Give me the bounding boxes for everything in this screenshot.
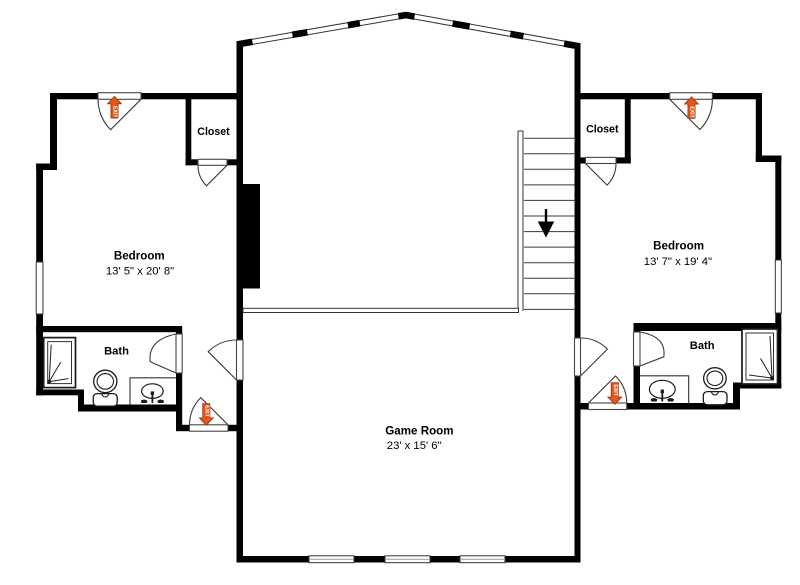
- svg-text:23' x 15' 6": 23' x 15' 6": [387, 440, 442, 452]
- svg-text:EXIT: EXIT: [612, 384, 618, 396]
- svg-text:EXIT: EXIT: [112, 106, 118, 118]
- svg-text:Closet: Closet: [197, 126, 230, 138]
- svg-text:Bedroom: Bedroom: [653, 239, 704, 252]
- svg-text:EXIT: EXIT: [203, 405, 209, 417]
- svg-text:Game Room: Game Room: [385, 425, 453, 438]
- svg-text:Bath: Bath: [690, 340, 715, 352]
- svg-text:EXIT: EXIT: [689, 106, 695, 118]
- svg-text:Closet: Closet: [586, 124, 619, 136]
- svg-text:13' 5" x 20' 8": 13' 5" x 20' 8": [106, 266, 174, 278]
- svg-text:Bedroom: Bedroom: [114, 249, 165, 262]
- svg-text:Bath: Bath: [104, 346, 129, 358]
- svg-text:13' 7" x 19' 4": 13' 7" x 19' 4": [644, 256, 712, 268]
